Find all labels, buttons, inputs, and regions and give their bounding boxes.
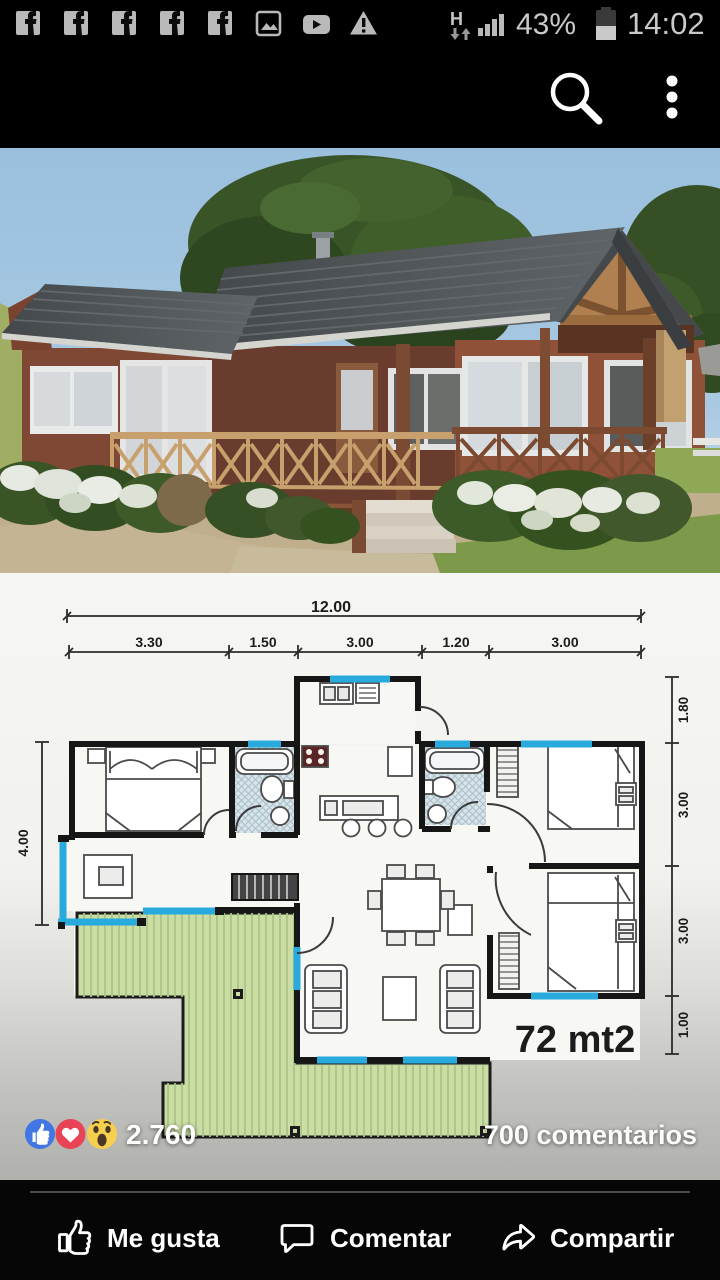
svg-text:43%: 43%: [516, 8, 576, 41]
svg-text:3.00: 3.00: [676, 918, 691, 944]
svg-text:1.20: 1.20: [442, 634, 469, 650]
svg-text:14:02: 14:02: [627, 6, 705, 41]
svg-text:3.00: 3.00: [676, 792, 691, 818]
svg-text:H: H: [450, 9, 463, 29]
svg-text:1.00: 1.00: [676, 1012, 691, 1038]
svg-text:4.00: 4.00: [15, 829, 31, 856]
svg-text:3.00: 3.00: [551, 634, 578, 650]
svg-text:3.30: 3.30: [135, 634, 162, 650]
svg-text:1.80: 1.80: [676, 697, 691, 723]
svg-text:72 mt2: 72 mt2: [515, 1019, 635, 1061]
svg-text:3.00: 3.00: [346, 634, 373, 650]
svg-text:1.50: 1.50: [249, 634, 276, 650]
svg-text:12.00: 12.00: [311, 599, 351, 616]
